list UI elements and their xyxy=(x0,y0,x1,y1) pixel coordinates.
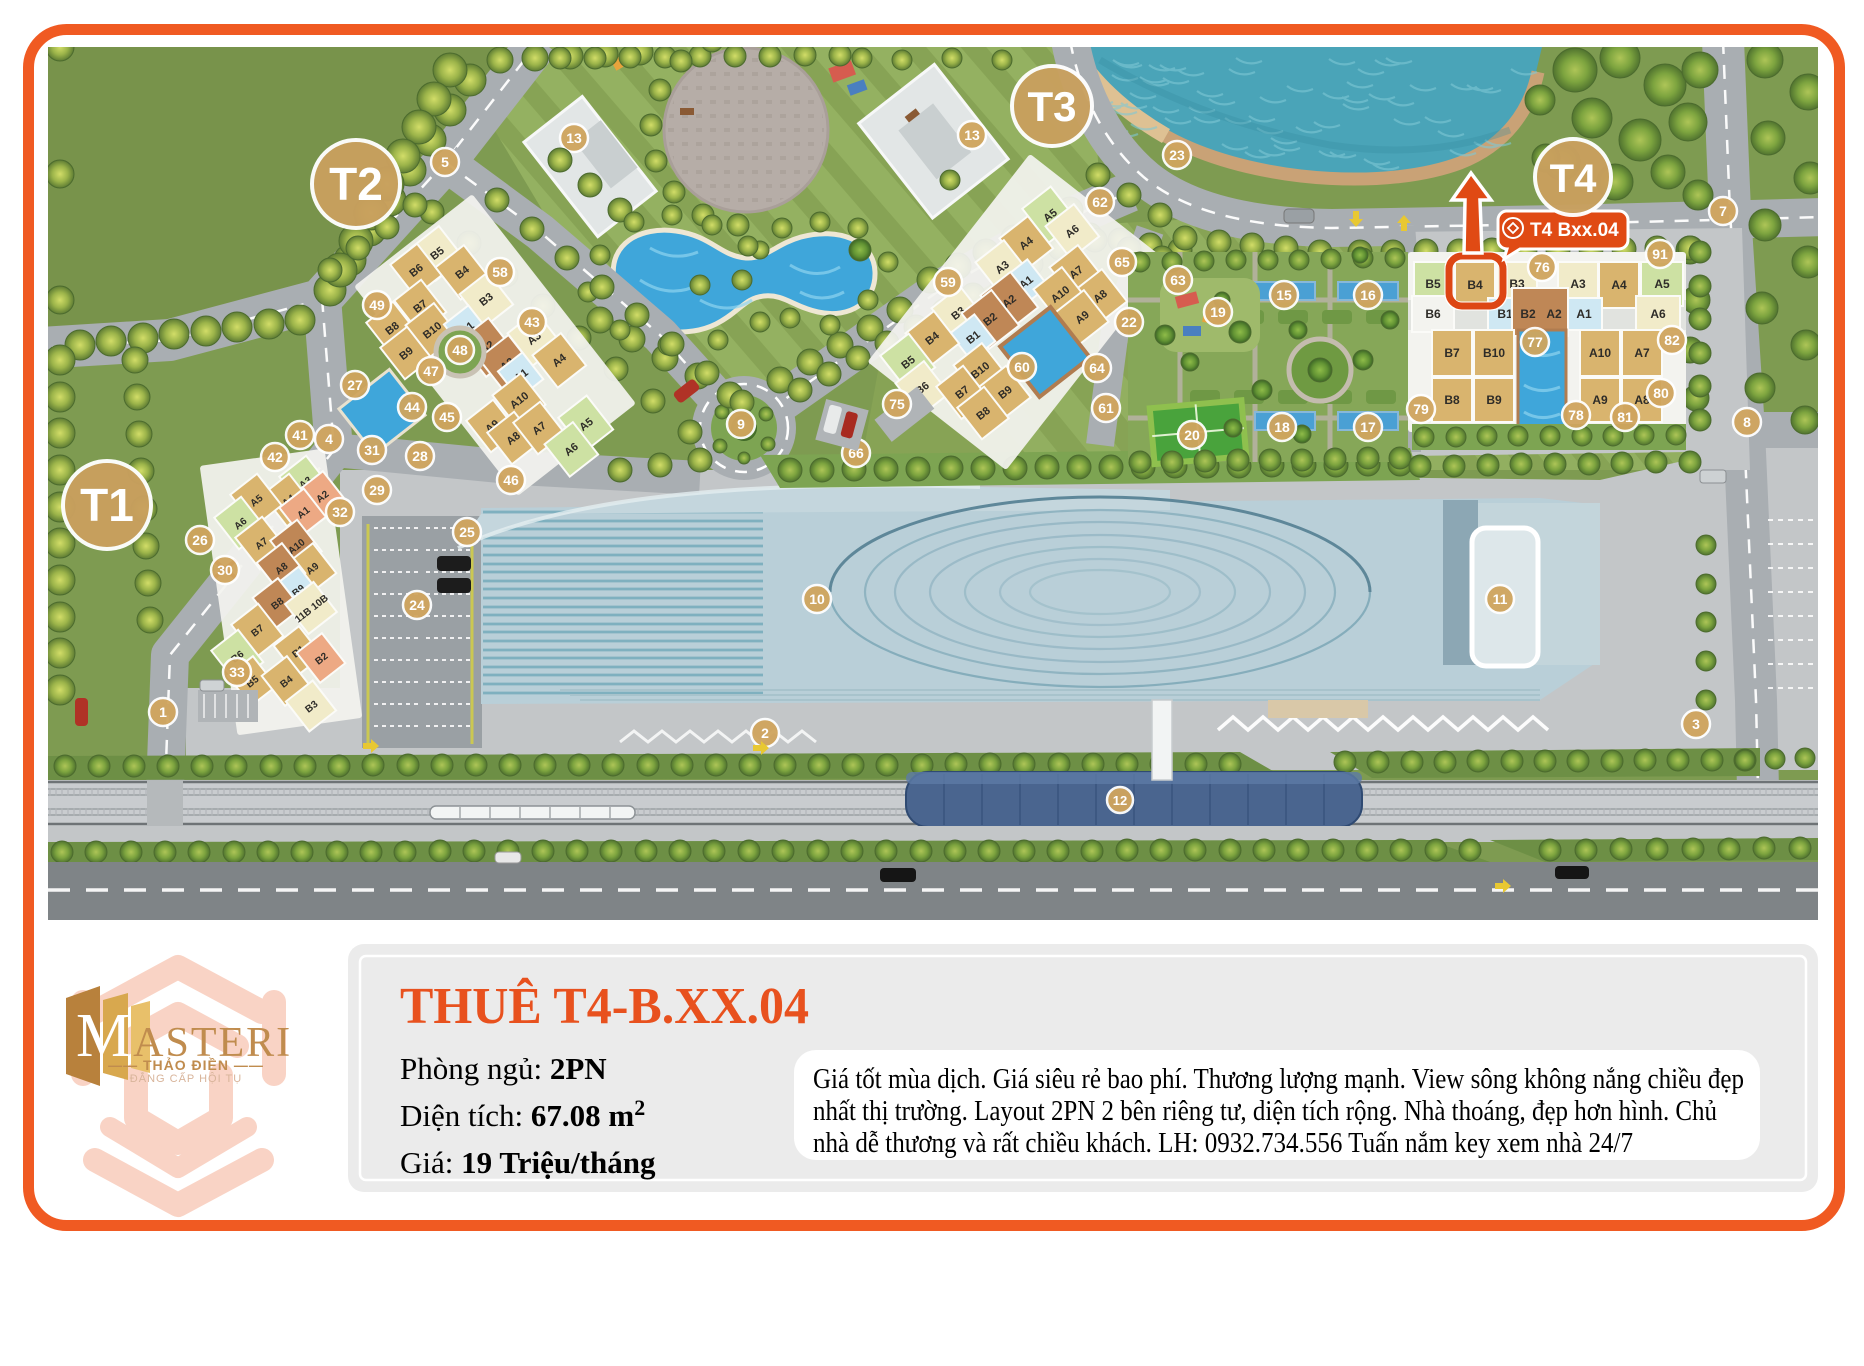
svg-text:5: 5 xyxy=(441,154,449,170)
svg-text:T1: T1 xyxy=(80,479,134,531)
svg-text:—— THẢO ĐIỀN ——: —— THẢO ĐIỀN —— xyxy=(108,1057,264,1073)
svg-text:ĐẲNG CẤP HỘI TỤ: ĐẲNG CẤP HỘI TỤ xyxy=(130,1072,242,1085)
svg-text:16: 16 xyxy=(1360,287,1376,303)
svg-text:29: 29 xyxy=(369,482,385,498)
svg-text:41: 41 xyxy=(292,427,308,443)
svg-text:62: 62 xyxy=(1092,194,1108,210)
svg-text:nhất thị trường. Layout 2PN 2: nhất thị trường. Layout 2PN 2 bên riêng … xyxy=(813,1096,1717,1127)
svg-text:T2: T2 xyxy=(329,158,383,210)
svg-text:13: 13 xyxy=(566,130,582,146)
svg-text:T3: T3 xyxy=(1027,83,1076,130)
svg-text:A7: A7 xyxy=(1634,346,1650,360)
svg-text:7: 7 xyxy=(1719,203,1727,219)
svg-text:75: 75 xyxy=(889,396,905,412)
svg-text:B7: B7 xyxy=(1444,346,1460,360)
svg-text:A5: A5 xyxy=(1654,277,1670,291)
svg-text:48: 48 xyxy=(452,342,468,358)
svg-text:T4 Bxx.04: T4 Bxx.04 xyxy=(1530,220,1619,241)
svg-text:Diện tích: 67.08 m2: Diện tích: 67.08 m2 xyxy=(400,1095,645,1133)
svg-text:A2: A2 xyxy=(1546,307,1562,321)
svg-text:33: 33 xyxy=(229,664,245,680)
svg-text:79: 79 xyxy=(1413,401,1429,417)
svg-text:A9: A9 xyxy=(1592,393,1608,407)
svg-text:Phòng ngủ: 2PN: Phòng ngủ: 2PN xyxy=(400,1051,607,1086)
svg-text:65: 65 xyxy=(1114,254,1130,270)
svg-text:B8: B8 xyxy=(1444,393,1460,407)
svg-text:32: 32 xyxy=(332,504,348,520)
svg-text:1: 1 xyxy=(159,704,167,720)
svg-text:9: 9 xyxy=(737,416,745,432)
svg-text:A4: A4 xyxy=(1611,278,1627,292)
svg-text:81: 81 xyxy=(1617,409,1633,425)
svg-text:63: 63 xyxy=(1170,272,1186,288)
svg-text:Giá: 19 Triệu/tháng: Giá: 19 Triệu/tháng xyxy=(400,1145,656,1180)
svg-text:THUÊ T4-B.XX.04: THUÊ T4-B.XX.04 xyxy=(400,977,809,1035)
svg-text:23: 23 xyxy=(1169,147,1185,163)
svg-text:82: 82 xyxy=(1664,332,1680,348)
svg-text:Giá tốt mùa dịch. Giá siêu rẻ: Giá tốt mùa dịch. Giá siêu rẻ bao phí. T… xyxy=(813,1064,1744,1095)
svg-text:47: 47 xyxy=(423,363,439,379)
svg-text:B4: B4 xyxy=(1467,278,1483,292)
svg-text:B1: B1 xyxy=(1497,307,1513,321)
svg-text:B6: B6 xyxy=(1425,307,1441,321)
svg-text:15: 15 xyxy=(1276,287,1292,303)
svg-text:A6: A6 xyxy=(1650,307,1666,321)
svg-text:24: 24 xyxy=(409,597,425,613)
svg-text:64: 64 xyxy=(1089,360,1105,376)
svg-text:76: 76 xyxy=(1534,259,1550,275)
svg-text:4: 4 xyxy=(325,431,333,447)
svg-text:60: 60 xyxy=(1014,359,1030,375)
svg-text:8: 8 xyxy=(1743,414,1751,430)
svg-text:43: 43 xyxy=(524,314,540,330)
svg-text:12: 12 xyxy=(1113,793,1127,808)
svg-text:B5: B5 xyxy=(1425,277,1441,291)
svg-text:B10: B10 xyxy=(1483,346,1505,360)
svg-text:T4: T4 xyxy=(1550,157,1597,201)
svg-text:58: 58 xyxy=(492,264,508,280)
svg-text:19: 19 xyxy=(1210,304,1226,320)
svg-text:78: 78 xyxy=(1568,407,1584,423)
svg-text:A10: A10 xyxy=(1589,346,1611,360)
svg-text:3: 3 xyxy=(1692,716,1700,732)
svg-text:17: 17 xyxy=(1360,419,1376,435)
svg-text:49: 49 xyxy=(369,297,385,313)
svg-text:B9: B9 xyxy=(1486,393,1502,407)
svg-text:27: 27 xyxy=(347,377,363,393)
svg-text:30: 30 xyxy=(217,562,233,578)
svg-text:10: 10 xyxy=(809,591,825,607)
svg-text:nhà dễ thương và rất chiều khá: nhà dễ thương và rất chiều khách. LH: 09… xyxy=(813,1128,1633,1159)
svg-text:42: 42 xyxy=(267,449,283,465)
svg-text:61: 61 xyxy=(1098,400,1114,416)
svg-text:28: 28 xyxy=(412,448,428,464)
svg-text:18: 18 xyxy=(1274,419,1290,435)
svg-text:31: 31 xyxy=(364,442,380,458)
svg-text:45: 45 xyxy=(439,409,455,425)
svg-text:25: 25 xyxy=(459,524,475,540)
svg-text:2: 2 xyxy=(761,725,769,741)
svg-text:44: 44 xyxy=(404,399,420,415)
svg-text:13: 13 xyxy=(964,127,980,143)
svg-text:20: 20 xyxy=(1184,427,1200,443)
svg-text:46: 46 xyxy=(503,472,519,488)
svg-text:B2: B2 xyxy=(1520,307,1536,321)
svg-text:59: 59 xyxy=(940,274,956,290)
svg-text:77: 77 xyxy=(1527,334,1543,350)
svg-text:22: 22 xyxy=(1121,314,1137,330)
svg-text:26: 26 xyxy=(192,532,208,548)
svg-text:A1: A1 xyxy=(1576,307,1592,321)
svg-text:A3: A3 xyxy=(1570,277,1586,291)
svg-text:11: 11 xyxy=(1493,591,1508,607)
svg-text:80: 80 xyxy=(1653,385,1669,401)
svg-text:91: 91 xyxy=(1652,246,1668,262)
